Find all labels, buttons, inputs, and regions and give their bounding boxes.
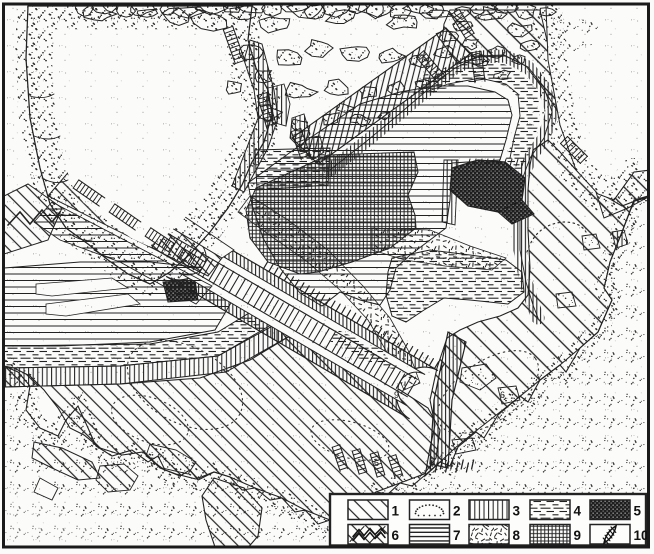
svg-text:5: 5	[634, 504, 642, 519]
svg-text:2: 2	[453, 504, 461, 519]
svg-text:6: 6	[392, 528, 400, 543]
svg-text:1: 1	[392, 504, 400, 519]
svg-text:8: 8	[513, 528, 521, 543]
svg-text:10: 10	[634, 528, 649, 543]
svg-text:7: 7	[453, 528, 461, 543]
svg-text:3: 3	[513, 504, 521, 519]
svg-text:9: 9	[574, 528, 582, 543]
svg-text:4: 4	[574, 504, 582, 519]
